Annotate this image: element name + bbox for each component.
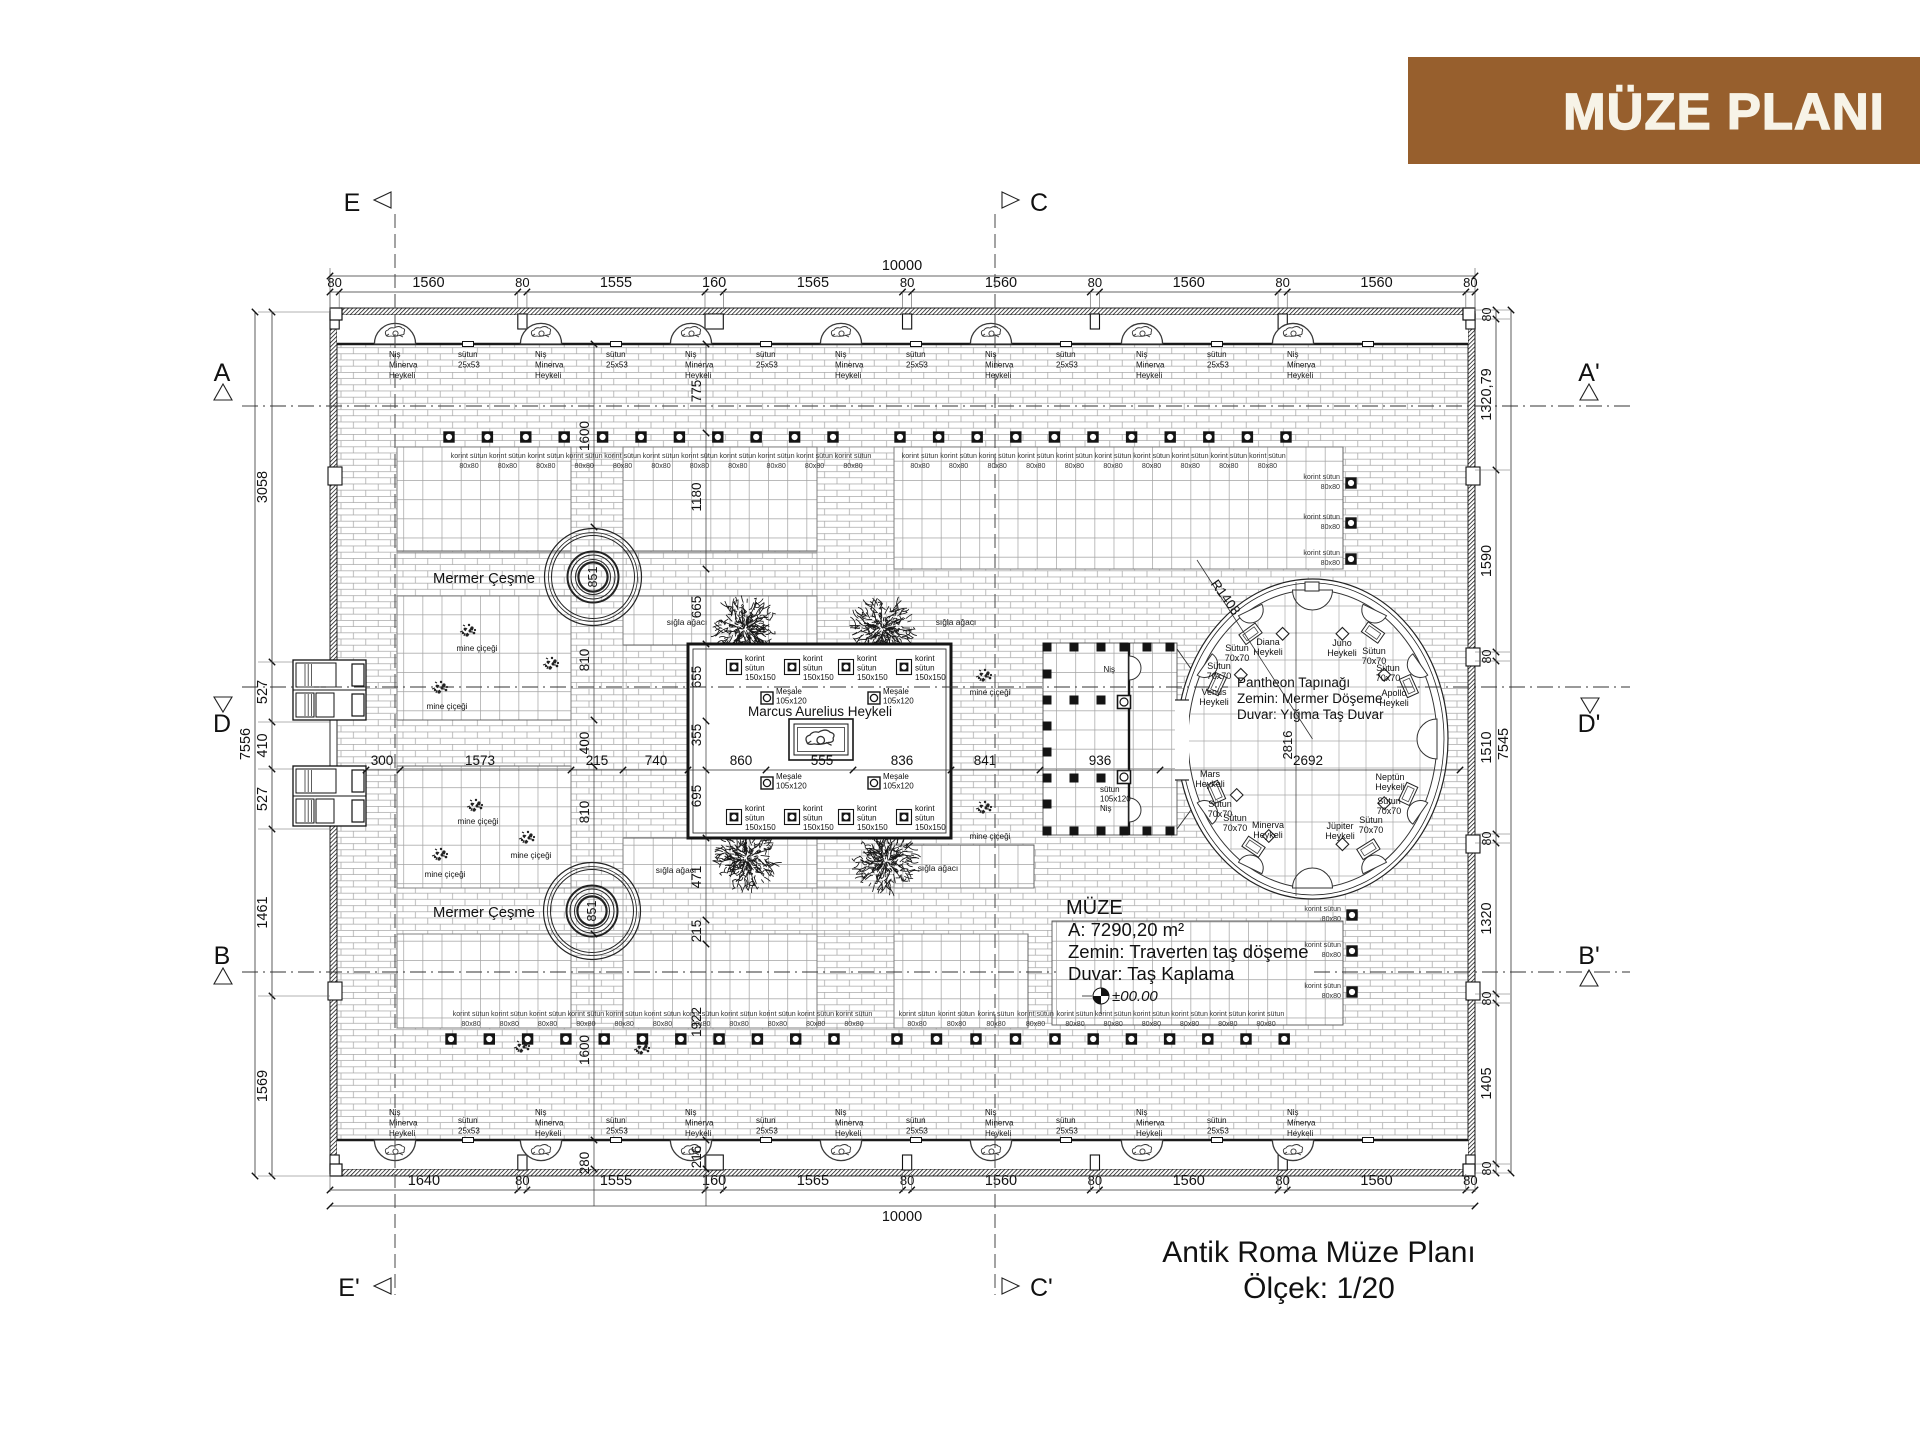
svg-text:korint sütun: korint sütun <box>643 452 680 460</box>
svg-text:150x150: 150x150 <box>803 823 834 832</box>
svg-text:korint sütun: korint sütun <box>938 1010 975 1018</box>
svg-text:korint sütun: korint sütun <box>1249 452 1286 460</box>
svg-text:Heykeli: Heykeli <box>835 1129 861 1138</box>
svg-text:korint sütun: korint sütun <box>899 1010 936 1018</box>
svg-text:80x80: 80x80 <box>1180 1020 1199 1028</box>
svg-text:Heykeli: Heykeli <box>985 1129 1011 1138</box>
svg-text:80: 80 <box>1463 275 1477 290</box>
svg-text:sütun: sütun <box>857 664 877 673</box>
svg-text:810: 810 <box>577 801 592 824</box>
svg-text:Sütun: Sütun <box>1377 796 1401 806</box>
svg-text:Minerva: Minerva <box>685 361 714 370</box>
svg-text:sütun: sütun <box>915 664 935 673</box>
svg-text:sütun: sütun <box>458 1116 478 1125</box>
svg-text:korint sütun: korint sütun <box>681 452 718 460</box>
svg-text:C': C' <box>1030 1274 1053 1302</box>
svg-text:80: 80 <box>900 275 914 290</box>
svg-text:korint sütun: korint sütun <box>1304 982 1341 990</box>
svg-text:25x53: 25x53 <box>606 361 628 370</box>
svg-text:105x120: 105x120 <box>776 782 807 791</box>
svg-text:korint sütun: korint sütun <box>835 452 872 460</box>
svg-text:sütun: sütun <box>1207 350 1227 359</box>
svg-text:80: 80 <box>327 275 341 290</box>
svg-text:sütun: sütun <box>906 1116 926 1125</box>
svg-text:Sütun: Sütun <box>1223 813 1247 823</box>
svg-text:10000: 10000 <box>882 258 922 274</box>
svg-text:korint sütun: korint sütun <box>1017 1010 1054 1018</box>
svg-text:555: 555 <box>811 753 834 768</box>
svg-text:280: 280 <box>577 1152 592 1175</box>
svg-text:Niş: Niş <box>685 350 697 359</box>
svg-text:mine çiçeği: mine çiçeği <box>970 832 1011 841</box>
svg-text:sütun: sütun <box>915 814 935 823</box>
svg-text:korint sütun: korint sütun <box>1303 473 1340 481</box>
svg-text:471: 471 <box>689 866 704 889</box>
svg-text:Ölçek: 1/20: Ölçek: 1/20 <box>1243 1272 1395 1305</box>
svg-text:korint: korint <box>857 654 877 663</box>
svg-text:A: 7290,20 m²: A: 7290,20 m² <box>1068 919 1184 940</box>
svg-text:150x150: 150x150 <box>745 823 776 832</box>
svg-text:Mermer Çeşme: Mermer Çeşme <box>433 905 535 921</box>
svg-text:Neptün: Neptün <box>1375 772 1404 782</box>
svg-text:80x80: 80x80 <box>1104 1020 1123 1028</box>
svg-text:665: 665 <box>689 596 704 619</box>
svg-text:Niş: Niş <box>835 1108 847 1117</box>
svg-text:3058: 3058 <box>255 471 271 503</box>
svg-text:80x80: 80x80 <box>1321 523 1340 531</box>
svg-text:A': A' <box>1578 359 1599 387</box>
svg-text:sütun: sütun <box>458 350 478 359</box>
svg-text:Heykeli: Heykeli <box>1136 371 1162 380</box>
svg-text:Heykeli: Heykeli <box>985 371 1011 380</box>
svg-text:Heykeli: Heykeli <box>1253 830 1283 840</box>
svg-text:Heykeli: Heykeli <box>1253 647 1283 657</box>
svg-text:1555: 1555 <box>600 1173 632 1189</box>
svg-text:80x80: 80x80 <box>536 462 555 470</box>
svg-text:1560: 1560 <box>985 1173 1017 1189</box>
svg-text:695: 695 <box>689 785 704 808</box>
svg-text:sütun: sütun <box>1100 785 1120 794</box>
svg-text:Antik Roma Müze Planı: Antik Roma Müze Planı <box>1162 1236 1475 1269</box>
svg-text:korint sütun: korint sütun <box>1304 941 1341 949</box>
svg-text:1560: 1560 <box>1360 1173 1392 1189</box>
svg-text:1560: 1560 <box>1360 275 1392 291</box>
svg-text:korint sütun: korint sütun <box>644 1010 681 1018</box>
svg-text:D: D <box>213 710 231 738</box>
svg-text:D': D' <box>1578 710 1601 738</box>
svg-text:korint: korint <box>803 804 823 813</box>
svg-text:70x70: 70x70 <box>1359 825 1384 835</box>
svg-text:1320: 1320 <box>1479 902 1495 934</box>
svg-text:Minerva: Minerva <box>535 361 564 370</box>
svg-text:1560: 1560 <box>412 275 444 291</box>
svg-text:Niş: Niş <box>835 350 847 359</box>
svg-text:korint sütun: korint sütun <box>529 1010 566 1018</box>
svg-text:sütun: sütun <box>1056 350 1076 359</box>
svg-text:25x53: 25x53 <box>756 361 778 370</box>
svg-text:sütun: sütun <box>756 1116 776 1125</box>
svg-text:Heykeli: Heykeli <box>1327 648 1357 658</box>
svg-text:Minerva: Minerva <box>835 361 864 370</box>
svg-text:mine çiçeği: mine çiçeği <box>425 870 466 879</box>
svg-text:mine çiçeği: mine çiçeği <box>970 688 1011 697</box>
svg-text:80: 80 <box>1480 308 1494 322</box>
svg-text:Heykeli: Heykeli <box>535 371 561 380</box>
svg-text:Venüs: Venüs <box>1201 687 1227 697</box>
svg-text:MÜZE: MÜZE <box>1066 897 1123 919</box>
svg-text:Heykeli: Heykeli <box>685 371 711 380</box>
svg-text:MÜZE PLANI: MÜZE PLANI <box>1563 83 1885 140</box>
svg-text:Sütun: Sütun <box>1208 799 1232 809</box>
svg-text:korint sütun: korint sütun <box>1095 1010 1132 1018</box>
svg-text:sütun: sütun <box>745 664 765 673</box>
svg-text:C: C <box>1030 189 1048 217</box>
svg-text:80x80: 80x80 <box>1322 915 1341 923</box>
svg-text:Mermer Çeşme: Mermer Çeşme <box>433 571 535 587</box>
svg-text:1573: 1573 <box>465 753 495 768</box>
svg-text:25x53: 25x53 <box>606 1127 628 1136</box>
svg-text:80x80: 80x80 <box>1258 462 1277 470</box>
svg-text:Minerva: Minerva <box>1136 361 1165 370</box>
svg-text:Meşale: Meşale <box>883 687 909 696</box>
svg-text:1565: 1565 <box>797 275 829 291</box>
svg-text:160: 160 <box>702 275 726 291</box>
svg-text:sütun: sütun <box>906 350 926 359</box>
svg-text:Minerva: Minerva <box>1136 1119 1165 1128</box>
svg-text:Juno: Juno <box>1332 638 1352 648</box>
svg-text:korint: korint <box>803 654 823 663</box>
svg-text:80x80: 80x80 <box>1026 1020 1045 1028</box>
svg-text:80x80: 80x80 <box>1321 483 1340 491</box>
svg-text:sütun: sütun <box>1056 1116 1076 1125</box>
svg-text:105x120: 105x120 <box>1100 795 1131 804</box>
svg-text:Meşale: Meşale <box>883 772 909 781</box>
svg-text:80x80: 80x80 <box>988 462 1007 470</box>
svg-text:korint sütun: korint sütun <box>978 1010 1015 1018</box>
svg-text:B': B' <box>1578 942 1599 970</box>
svg-text:korint sütun: korint sütun <box>568 1010 605 1018</box>
svg-text:Niş: Niş <box>1103 665 1115 674</box>
svg-text:Mars: Mars <box>1200 769 1220 779</box>
svg-text:810: 810 <box>577 649 592 672</box>
svg-text:korint: korint <box>745 654 765 663</box>
svg-text:Minerva: Minerva <box>985 1119 1014 1128</box>
svg-text:Niş: Niş <box>535 1108 547 1117</box>
svg-text:80: 80 <box>1275 275 1289 290</box>
svg-text:851: 851 <box>586 567 600 588</box>
svg-text:korint: korint <box>745 804 765 813</box>
svg-text:80x80: 80x80 <box>1026 462 1045 470</box>
svg-text:25x53: 25x53 <box>1056 1127 1078 1136</box>
svg-text:80x80: 80x80 <box>653 1020 672 1028</box>
svg-text:korint sütun: korint sütun <box>758 452 795 460</box>
svg-text:sığla ağacı: sığla ağacı <box>918 863 959 873</box>
svg-text:korint sütun: korint sütun <box>759 1010 796 1018</box>
svg-text:80x80: 80x80 <box>768 1020 787 1028</box>
svg-text:80x80: 80x80 <box>907 1020 926 1028</box>
svg-text:1560: 1560 <box>1173 1173 1205 1189</box>
svg-text:25x53: 25x53 <box>458 361 480 370</box>
svg-text:80x80: 80x80 <box>947 1020 966 1028</box>
svg-text:7556: 7556 <box>238 728 254 760</box>
svg-text:korint sütun: korint sütun <box>1171 1010 1208 1018</box>
svg-text:70x70: 70x70 <box>1207 671 1232 681</box>
svg-text:A: A <box>214 359 231 387</box>
svg-text:Sütun: Sütun <box>1225 643 1249 653</box>
svg-text:80x80: 80x80 <box>1142 1020 1161 1028</box>
svg-text:1565: 1565 <box>797 1173 829 1189</box>
svg-text:Sütun: Sütun <box>1207 661 1231 671</box>
svg-text:80x80: 80x80 <box>575 462 594 470</box>
svg-text:216: 216 <box>689 1146 704 1169</box>
svg-text:300: 300 <box>371 753 394 768</box>
svg-text:sütun: sütun <box>803 664 823 673</box>
svg-text:1600: 1600 <box>577 421 592 451</box>
svg-text:korint sütun: korint sütun <box>721 1010 758 1018</box>
svg-text:1560: 1560 <box>985 275 1017 291</box>
svg-text:korint: korint <box>915 804 935 813</box>
svg-text:80x80: 80x80 <box>500 1020 519 1028</box>
svg-text:80x80: 80x80 <box>538 1020 557 1028</box>
svg-text:25x53: 25x53 <box>906 361 928 370</box>
svg-text:25x53: 25x53 <box>756 1127 778 1136</box>
svg-text:Minerva: Minerva <box>985 361 1014 370</box>
svg-text:mine çiçeği: mine çiçeği <box>458 817 499 826</box>
svg-text:korint sütun: korint sütun <box>606 1010 643 1018</box>
svg-text:25x53: 25x53 <box>458 1127 480 1136</box>
svg-text:korint sütun: korint sütun <box>1209 1010 1246 1018</box>
svg-text:25x53: 25x53 <box>1056 361 1078 370</box>
svg-text:1405: 1405 <box>1479 1067 1495 1099</box>
svg-text:korint sütun: korint sütun <box>979 452 1016 460</box>
svg-text:Heykeli: Heykeli <box>535 1129 561 1138</box>
svg-text:korint sütun: korint sütun <box>1172 452 1209 460</box>
svg-text:Duvar: Taş Kaplama: Duvar: Taş Kaplama <box>1068 963 1235 984</box>
svg-text:150x150: 150x150 <box>857 823 888 832</box>
svg-text:80x80: 80x80 <box>1065 1020 1084 1028</box>
svg-text:Sütun: Sütun <box>1376 663 1400 673</box>
svg-text:80x80: 80x80 <box>1103 462 1122 470</box>
svg-text:korint sütun: korint sütun <box>566 452 603 460</box>
svg-text:25x53: 25x53 <box>906 1127 928 1136</box>
svg-text:B: B <box>214 942 231 970</box>
svg-text:sütun: sütun <box>803 814 823 823</box>
svg-text:sütun: sütun <box>745 814 765 823</box>
svg-text:Heykeli: Heykeli <box>1195 779 1225 789</box>
svg-text:sütun: sütun <box>756 350 776 359</box>
svg-text:7545: 7545 <box>1496 728 1512 760</box>
svg-text:80x80: 80x80 <box>1256 1020 1275 1028</box>
svg-text:80x80: 80x80 <box>986 1020 1005 1028</box>
svg-text:mine çiçeği: mine çiçeği <box>457 644 498 653</box>
svg-text:215: 215 <box>586 753 609 768</box>
svg-text:25x53: 25x53 <box>1207 1127 1229 1136</box>
svg-text:355: 355 <box>689 724 704 747</box>
svg-text:Minerva: Minerva <box>685 1119 714 1128</box>
svg-text:sığla ağacı: sığla ağacı <box>936 617 977 627</box>
svg-text:Heykeli: Heykeli <box>1287 1129 1313 1138</box>
svg-text:105x120: 105x120 <box>883 782 914 791</box>
svg-text:1320,79: 1320,79 <box>1479 368 1495 420</box>
svg-text:Niş: Niş <box>535 350 547 359</box>
svg-text:80: 80 <box>1480 1162 1494 1176</box>
svg-text:80x80: 80x80 <box>1322 951 1341 959</box>
svg-text:936: 936 <box>1089 753 1112 768</box>
svg-text:80x80: 80x80 <box>805 462 824 470</box>
svg-text:Duvar: Yığma Taş Duvar: Duvar: Yığma Taş Duvar <box>1237 707 1384 722</box>
svg-text:1600: 1600 <box>577 1035 592 1065</box>
svg-text:80x80: 80x80 <box>459 462 478 470</box>
svg-text:Jüpiter: Jüpiter <box>1326 821 1353 831</box>
svg-text:80x80: 80x80 <box>728 462 747 470</box>
svg-text:80: 80 <box>515 275 529 290</box>
svg-text:80x80: 80x80 <box>1065 462 1084 470</box>
svg-text:860: 860 <box>730 753 753 768</box>
svg-text:80x80: 80x80 <box>843 462 862 470</box>
svg-text:80x80: 80x80 <box>729 1020 748 1028</box>
svg-text:mine çiçeği: mine çiçeği <box>427 702 468 711</box>
svg-text:Heykeli: Heykeli <box>1199 697 1229 707</box>
svg-text:korint sütun: korint sütun <box>1248 1010 1285 1018</box>
svg-text:80x80: 80x80 <box>1142 462 1161 470</box>
svg-text:korint sütun: korint sütun <box>451 452 488 460</box>
svg-text:korint: korint <box>915 654 935 663</box>
svg-text:Meşale: Meşale <box>776 687 802 696</box>
svg-text:80x80: 80x80 <box>844 1020 863 1028</box>
svg-text:Heykeli: Heykeli <box>1379 698 1409 708</box>
svg-text:10000: 10000 <box>882 1209 922 1225</box>
svg-text:80x80: 80x80 <box>498 462 517 470</box>
svg-text:mine çiçeği: mine çiçeği <box>511 851 552 860</box>
svg-text:sütun: sütun <box>606 350 626 359</box>
svg-text:70x70: 70x70 <box>1223 823 1248 833</box>
svg-text:80x80: 80x80 <box>615 1020 634 1028</box>
svg-text:Heykeli: Heykeli <box>389 371 415 380</box>
svg-text:korint sütun: korint sütun <box>1210 452 1247 460</box>
svg-text:1180: 1180 <box>689 482 704 511</box>
svg-text:80x80: 80x80 <box>461 1020 480 1028</box>
svg-text:80: 80 <box>1480 650 1494 664</box>
svg-text:80: 80 <box>1088 1173 1102 1188</box>
svg-text:Minerva: Minerva <box>835 1119 864 1128</box>
svg-text:Marcus Aurelius Heykeli: Marcus Aurelius Heykeli <box>748 704 892 719</box>
svg-text:80x80: 80x80 <box>613 462 632 470</box>
svg-text:Zemin: Mermer Döşeme: Zemin: Mermer Döşeme <box>1237 691 1383 706</box>
svg-text:80: 80 <box>1463 1173 1477 1188</box>
svg-text:Minerva: Minerva <box>1287 1119 1316 1128</box>
svg-text:Sütun: Sütun <box>1362 646 1386 656</box>
svg-text:Heykeli: Heykeli <box>1325 831 1355 841</box>
svg-text:527: 527 <box>255 787 271 811</box>
svg-text:80: 80 <box>1480 832 1494 846</box>
svg-text:Heykeli: Heykeli <box>685 1129 711 1138</box>
svg-text:Diana: Diana <box>1256 637 1280 647</box>
svg-text:25x53: 25x53 <box>1207 361 1229 370</box>
svg-text:400: 400 <box>577 732 592 755</box>
svg-text:1922: 1922 <box>689 1007 704 1037</box>
svg-text:korint sütun: korint sütun <box>527 452 564 460</box>
svg-text:korint sütun: korint sütun <box>1133 452 1170 460</box>
svg-text:E: E <box>344 189 361 217</box>
svg-text:±00.00: ±00.00 <box>1112 988 1158 1005</box>
svg-text:Minerva: Minerva <box>1287 361 1316 370</box>
svg-text:sütun: sütun <box>606 1116 626 1125</box>
svg-text:Minerva: Minerva <box>1252 820 1284 830</box>
svg-text:korint sütun: korint sütun <box>489 452 526 460</box>
svg-text:80x80: 80x80 <box>949 462 968 470</box>
svg-text:150x150: 150x150 <box>803 673 834 682</box>
svg-text:1510: 1510 <box>1479 731 1495 763</box>
svg-text:150x150: 150x150 <box>915 823 946 832</box>
svg-text:1569: 1569 <box>255 1070 271 1102</box>
svg-text:655: 655 <box>689 666 704 689</box>
svg-text:Sütun: Sütun <box>1359 815 1383 825</box>
svg-text:Zemin: Traverten taş döşeme: Zemin: Traverten taş döşeme <box>1068 941 1309 962</box>
svg-text:Niş: Niş <box>1287 350 1299 359</box>
svg-text:Minerva: Minerva <box>535 1119 564 1128</box>
svg-text:Minerva: Minerva <box>389 1119 418 1128</box>
svg-text:Heykeli: Heykeli <box>389 1129 415 1138</box>
svg-text:E': E' <box>338 1274 359 1302</box>
svg-text:Minerva: Minerva <box>389 361 418 370</box>
svg-text:841: 841 <box>974 753 997 768</box>
svg-text:70x70: 70x70 <box>1376 673 1401 683</box>
svg-text:80x80: 80x80 <box>1218 1020 1237 1028</box>
svg-text:1640: 1640 <box>408 1173 440 1189</box>
svg-text:Meşale: Meşale <box>776 772 802 781</box>
svg-text:527: 527 <box>255 680 271 704</box>
svg-text:korint sütun: korint sütun <box>836 1010 873 1018</box>
svg-text:2692: 2692 <box>1293 753 1323 768</box>
svg-text:Heykeli: Heykeli <box>1136 1129 1162 1138</box>
svg-text:80x80: 80x80 <box>767 462 786 470</box>
svg-text:80x80: 80x80 <box>1322 992 1341 1000</box>
svg-text:80x80: 80x80 <box>910 462 929 470</box>
svg-text:Niş: Niş <box>1136 350 1148 359</box>
svg-text:80: 80 <box>1480 992 1494 1006</box>
svg-text:80x80: 80x80 <box>1219 462 1238 470</box>
svg-text:1555: 1555 <box>600 275 632 291</box>
svg-text:836: 836 <box>891 753 914 768</box>
svg-text:Heykeli: Heykeli <box>1287 371 1313 380</box>
svg-text:80x80: 80x80 <box>1181 462 1200 470</box>
svg-text:korint sütun: korint sütun <box>1303 549 1340 557</box>
svg-text:215: 215 <box>689 920 704 943</box>
svg-text:150x150: 150x150 <box>857 673 888 682</box>
svg-text:korint sütun: korint sütun <box>719 452 756 460</box>
svg-text:80: 80 <box>515 1173 529 1188</box>
svg-text:korint sütun: korint sütun <box>902 452 939 460</box>
svg-text:775: 775 <box>689 380 704 403</box>
svg-text:740: 740 <box>645 753 668 768</box>
svg-text:80: 80 <box>1275 1173 1289 1188</box>
svg-text:korint sütun: korint sütun <box>453 1010 490 1018</box>
svg-text:korint sütun: korint sütun <box>940 452 977 460</box>
svg-text:Niş: Niş <box>685 1108 697 1117</box>
svg-text:korint sütun: korint sütun <box>797 1010 834 1018</box>
svg-text:korint sütun: korint sütun <box>1017 452 1054 460</box>
svg-text:851: 851 <box>585 901 599 922</box>
svg-text:korint sütun: korint sütun <box>796 452 833 460</box>
svg-text:Pantheon Tapınağı: Pantheon Tapınağı <box>1237 675 1350 690</box>
svg-text:sütun: sütun <box>857 814 877 823</box>
svg-text:80x80: 80x80 <box>576 1020 595 1028</box>
svg-text:Niş: Niş <box>1287 1108 1299 1117</box>
svg-text:korint sütun: korint sütun <box>604 452 641 460</box>
svg-text:korint sütun: korint sütun <box>491 1010 528 1018</box>
svg-text:korint sütun: korint sütun <box>1056 452 1093 460</box>
svg-text:80x80: 80x80 <box>1321 559 1340 567</box>
